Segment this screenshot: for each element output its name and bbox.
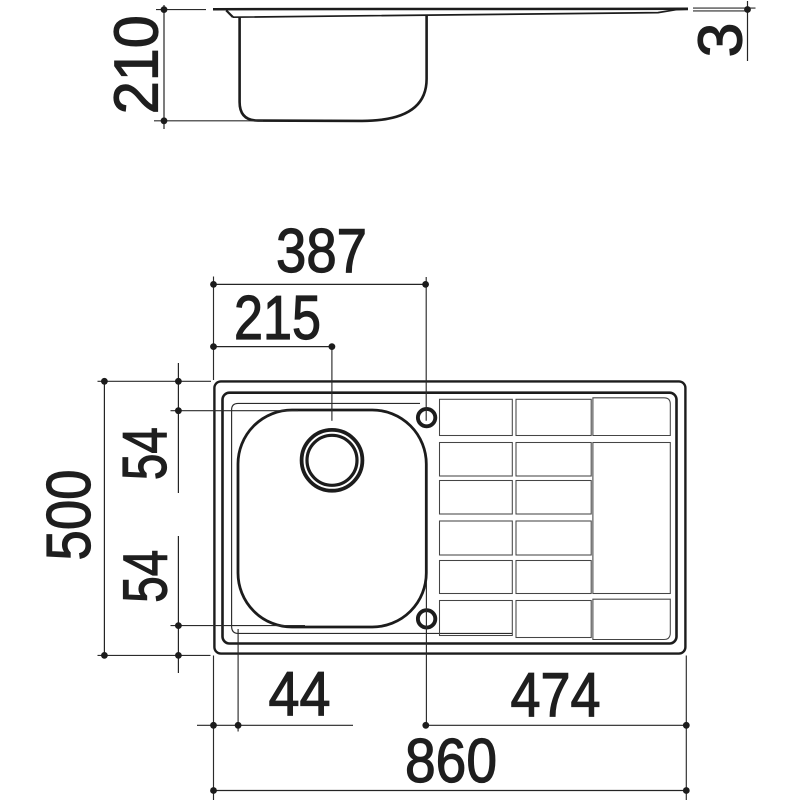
svg-text:44: 44 — [269, 659, 331, 729]
svg-text:860: 860 — [405, 726, 497, 796]
svg-text:210: 210 — [102, 15, 172, 114]
svg-text:215: 215 — [234, 283, 321, 353]
svg-text:54: 54 — [110, 550, 180, 603]
svg-text:500: 500 — [34, 470, 104, 561]
svg-text:474: 474 — [511, 660, 601, 730]
svg-text:3: 3 — [686, 23, 756, 58]
svg-text:54: 54 — [110, 427, 180, 480]
svg-text:387: 387 — [276, 216, 367, 286]
